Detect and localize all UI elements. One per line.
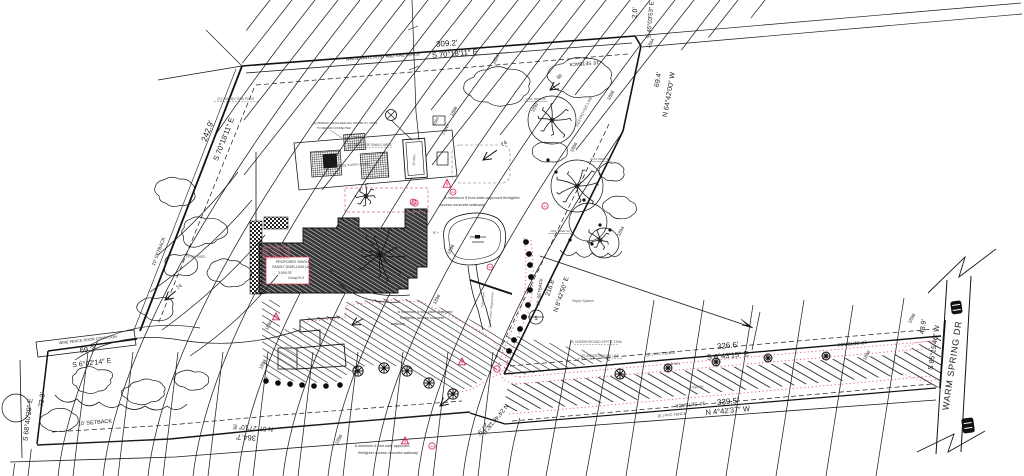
svg-text:OAK TREE 30: OAK TREE 30 [550,229,570,233]
svg-text:firefighter access concrete wa: firefighter access concrete walkway [358,451,418,455]
svg-text:walkway: walkway [391,322,405,326]
svg-text:A4: A4 [451,190,455,194]
svg-text:(E) PRIMARY DETACHED ADU DISAB: (E) PRIMARY DETACHED ADU DISABILITY UNIT… [313,121,378,125]
svg-text:A4: A4 [495,368,499,372]
svg-text:access concrete walkway: access concrete walkway [439,202,484,207]
svg-text:5' +: 5' + [433,231,439,235]
svg-text:364.7': 364.7' [235,432,256,442]
svg-text:A4: A4 [543,205,547,209]
svg-text:Septic System: Septic System [572,299,594,303]
svg-text:A4: A4 [488,265,492,269]
svg-text:A minimum 5 foot wide approved: A minimum 5 foot wide approved [354,444,409,448]
svg-text:2.0': 2.0' [632,7,640,19]
svg-text:Group R-3: Group R-3 [288,276,304,280]
svg-text:TO REMAIN CONNECTED: TO REMAIN CONNECTED [317,126,351,130]
svg-text:3,500 SF: 3,500 SF [278,271,292,275]
svg-text:(E) DRAINAGE SWALE AREA: (E) DRAINAGE SWALE AREA [348,143,392,147]
svg-text:A minimum 5 foot wide approved: A minimum 5 foot wide approved firefight… [444,195,520,200]
svg-text:(E) UNDERGROUND SEPTIC TANK: (E) UNDERGROUND SEPTIC TANK [570,340,623,344]
svg-text:(E) UNDERGROUND LINE: (E) UNDERGROUND LINE [581,354,620,358]
svg-text:FAMILY DWELLING UNIT: FAMILY DWELLING UNIT [272,265,314,269]
svg-text:firefighter access concrete: firefighter access concrete [400,316,444,320]
svg-text:(E) ADU: (E) ADU [412,154,417,165]
svg-text:OAK TREE 26: OAK TREE 26 [526,97,546,101]
svg-text:309.2': 309.2' [436,38,459,49]
svg-text:PROPOSED SINGLE: PROPOSED SINGLE [276,260,311,264]
svg-text:A4: A4 [413,202,417,206]
svg-text:ELM TREE 34: ELM TREE 34 [590,157,609,161]
svg-text:PLOW SHED: PLOW SHED [186,255,206,259]
svg-text:(E) CONNECTION POINT: (E) CONNECTION POINT [217,97,254,101]
svg-text:A4: A4 [430,445,434,449]
svg-text:A minimum 5 foot wide approved: A minimum 5 foot wide approved [397,310,452,314]
